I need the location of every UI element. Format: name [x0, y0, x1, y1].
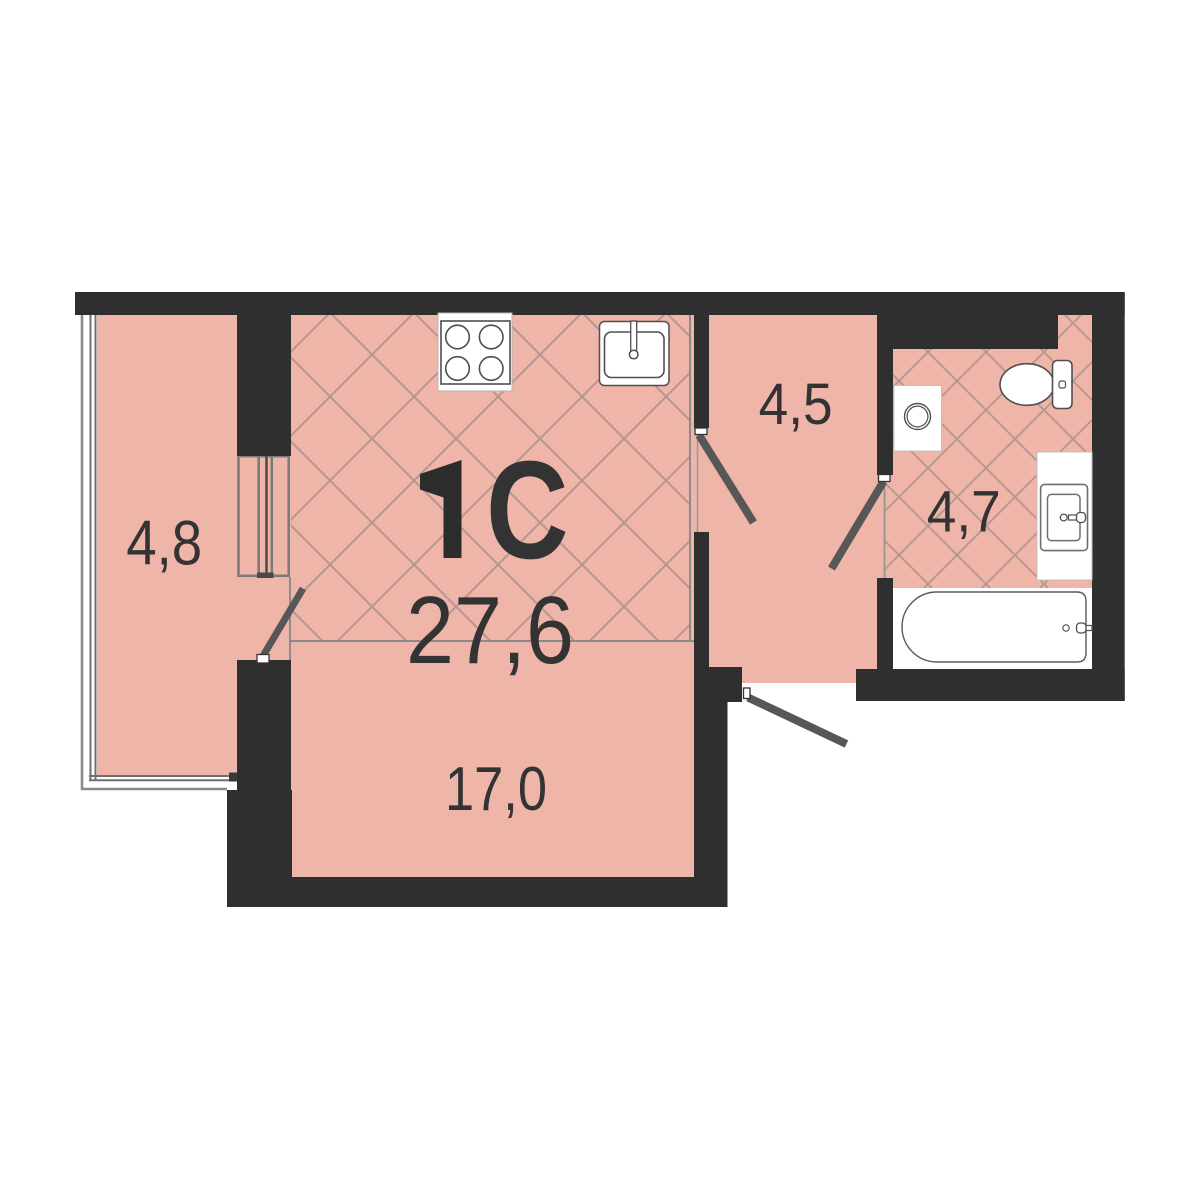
svg-text:17,0: 17,0: [445, 755, 547, 824]
svg-text:27,6: 27,6: [406, 577, 574, 684]
svg-text:4,8: 4,8: [126, 509, 202, 579]
svg-text:4,7: 4,7: [927, 480, 1001, 545]
svg-text:4,5: 4,5: [759, 372, 833, 437]
svg-text:С: С: [486, 432, 569, 588]
